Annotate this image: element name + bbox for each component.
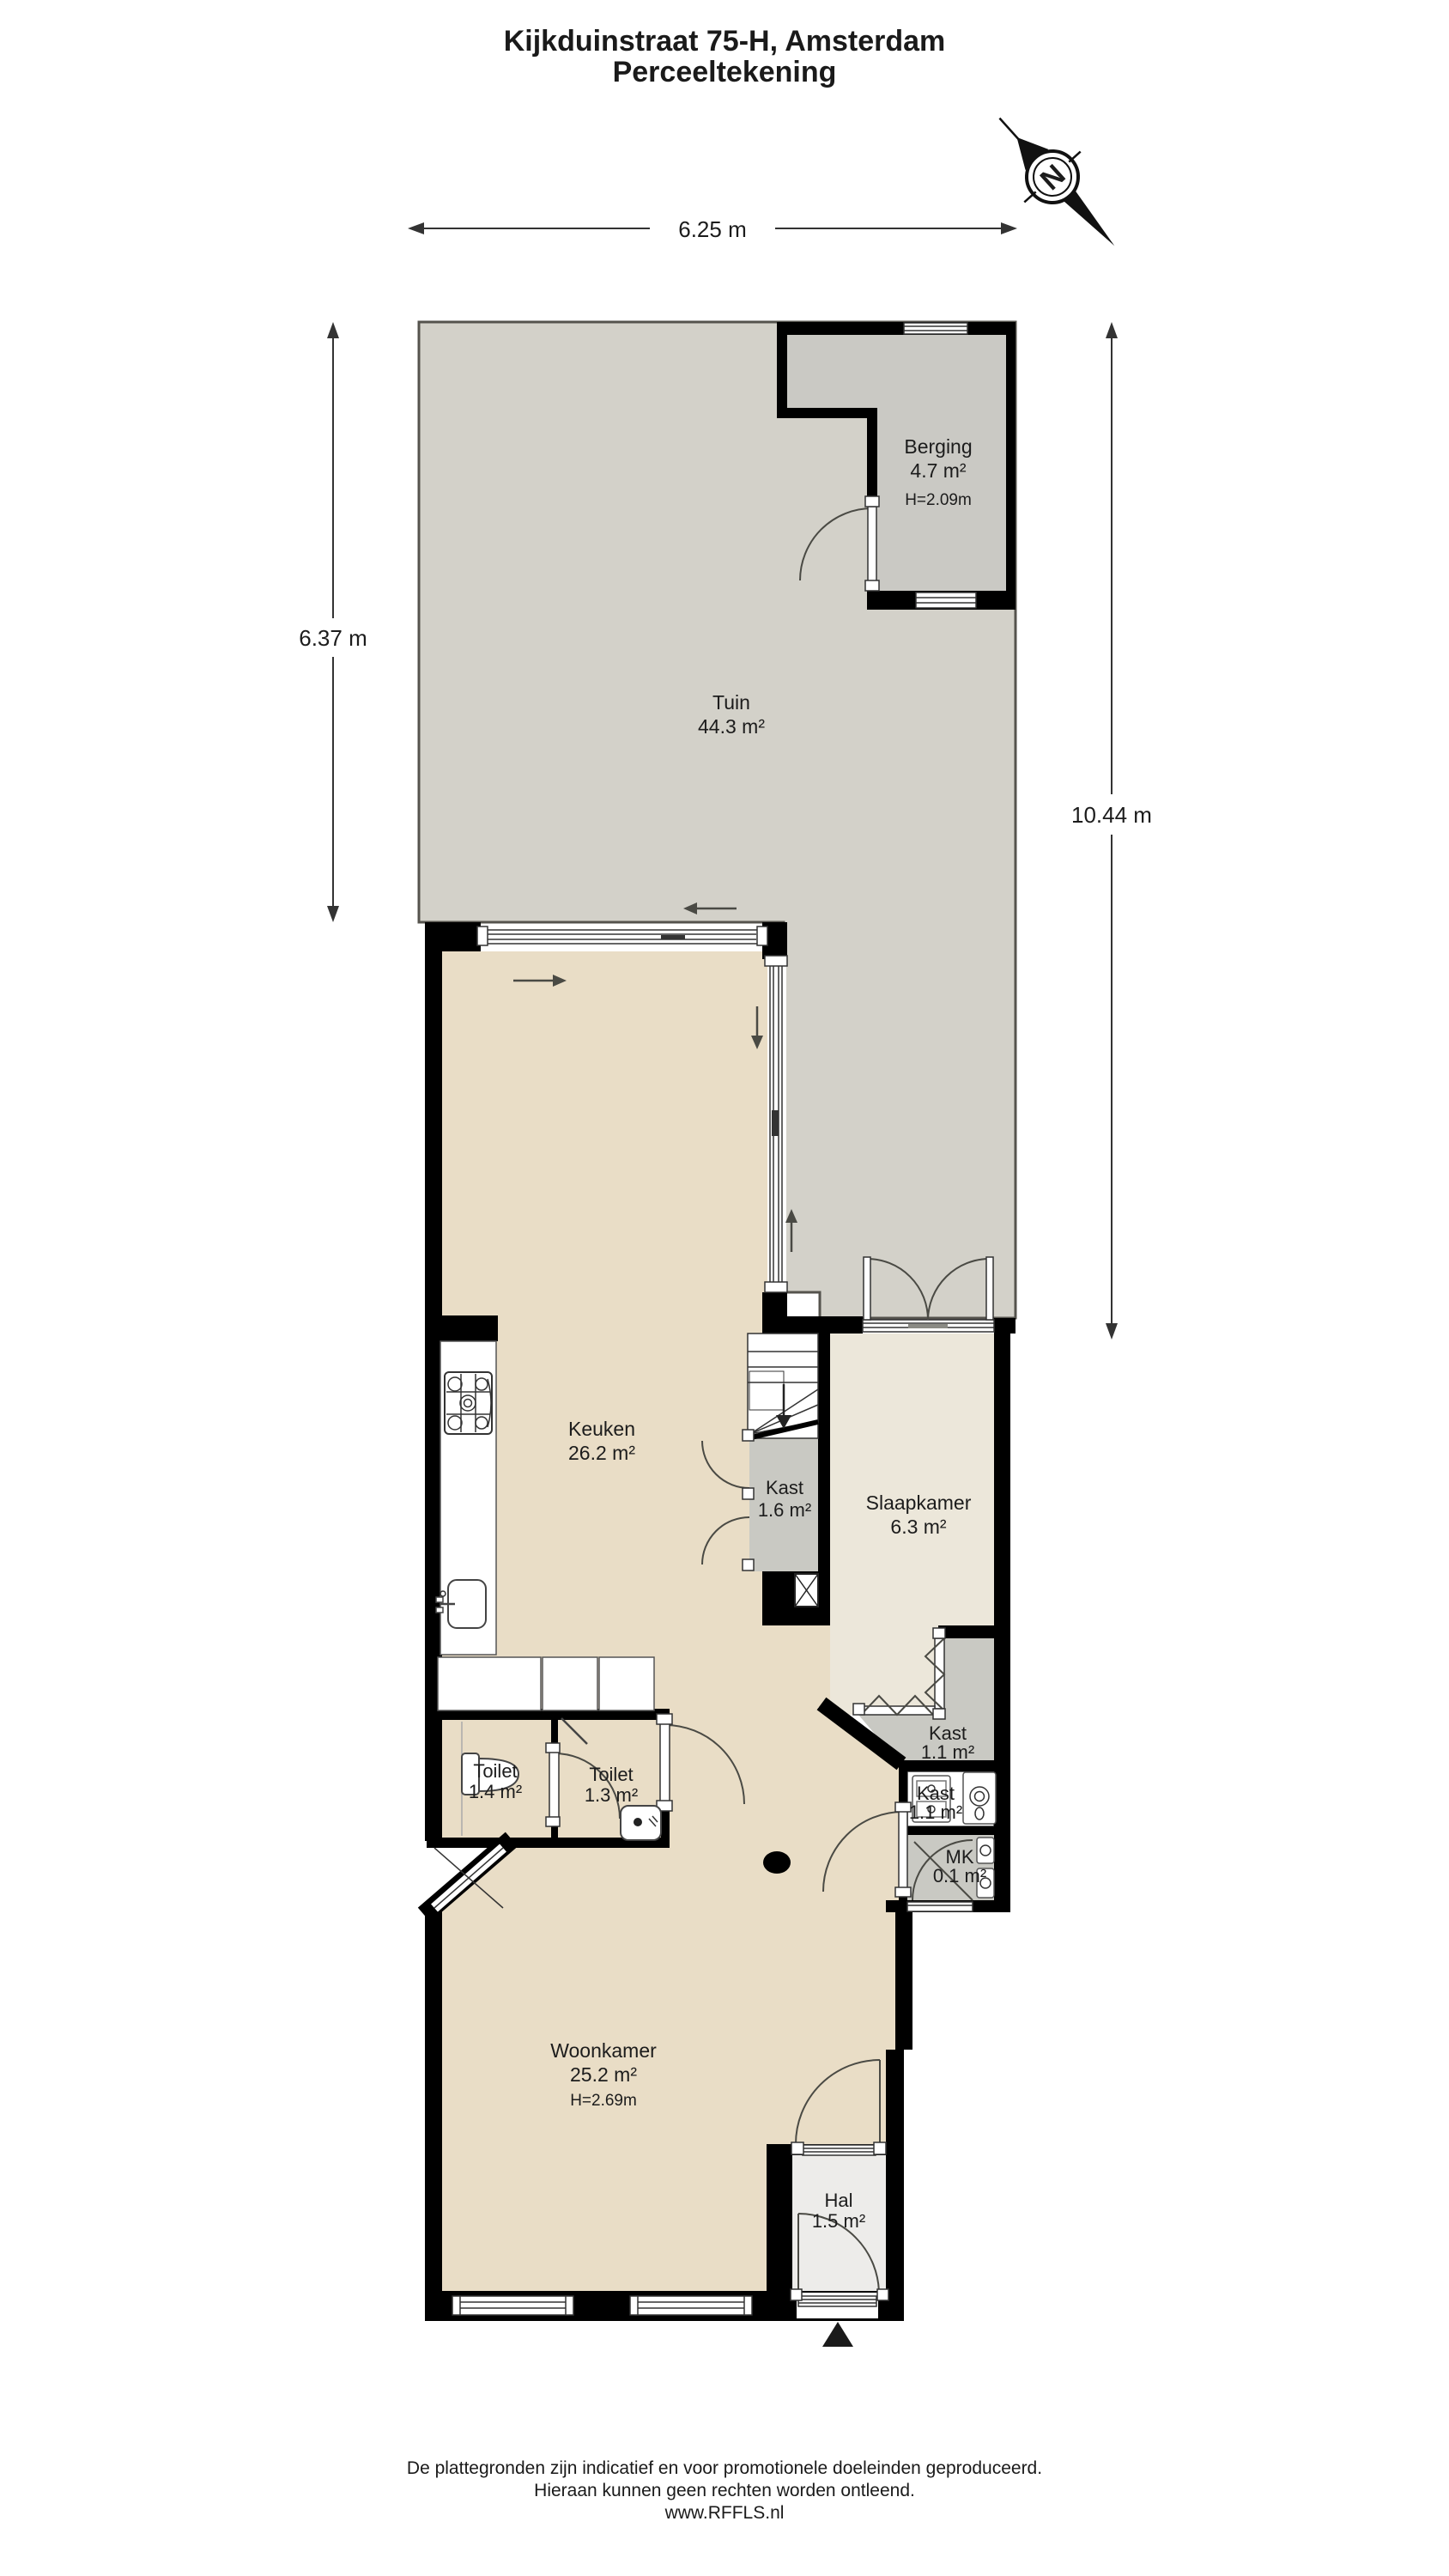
floorplan-page: Kijkduinstraat 75-H, Amsterdam Perceelte…	[0, 0, 1449, 2576]
kast-slk-area: 1.1 m²	[921, 1741, 974, 1763]
toilet-l-label: Toilet	[473, 1760, 517, 1782]
woonkamer-label: Woonkamer	[550, 2039, 657, 2062]
berging-height: H=2.09m	[905, 491, 972, 509]
footer-line2: Hieraan kunnen geen rechten worden ontle…	[0, 2480, 1449, 2502]
slaapkamer-area: 6.3 m²	[890, 1516, 947, 1538]
footer-disclaimer: De plattegronden zijn indicatief en voor…	[0, 2458, 1449, 2524]
footer-line1: De plattegronden zijn indicatief en voor…	[0, 2458, 1449, 2480]
toilet-r-label: Toilet	[589, 1764, 633, 1785]
page-title: Kijkduinstraat 75-H, Amsterdam Perceelte…	[0, 26, 1449, 88]
boiler-icon	[963, 1772, 996, 1824]
toilet-l-area: 1.4 m²	[469, 1781, 522, 1802]
woonkamer-area: 25.2 m²	[570, 2063, 637, 2086]
kast-trap-label: Kast	[766, 1477, 803, 1498]
dim-left-label: 6.37 m	[299, 625, 367, 651]
floorplan-drawing: 6.25 m 6.37 m 10.44 m N	[0, 0, 1449, 2576]
wc-icon	[621, 1806, 661, 1840]
column-dot	[763, 1851, 791, 1874]
hal-label: Hal	[824, 2190, 852, 2211]
dimension-left: 6.37 m	[292, 322, 374, 922]
slaapkamer-label: Slaapkamer	[866, 1492, 972, 1514]
berging-window-bottom	[916, 592, 976, 608]
kast-trap-area: 1.6 m²	[758, 1499, 811, 1521]
woonkamer-height: H=2.69m	[570, 2092, 637, 2110]
mk-area: 0.1 m²	[933, 1865, 986, 1886]
dimension-right: 10.44 m	[1064, 322, 1159, 1340]
entrance-arrow-icon	[822, 2322, 853, 2347]
tuin-area: 44.3 m²	[698, 715, 765, 738]
title-address: Kijkduinstraat 75-H, Amsterdam	[0, 26, 1449, 57]
title-subtitle: Perceeltekening	[0, 57, 1449, 88]
footer-url: www.RFFLS.nl	[0, 2502, 1449, 2524]
dimension-top: 6.25 m	[408, 216, 1017, 242]
berging-window-top	[904, 323, 967, 334]
keuken-label: Keuken	[568, 1418, 635, 1440]
toilet-r-area: 1.3 m²	[585, 1784, 638, 1806]
hal-area: 1.5 m²	[812, 2210, 865, 2232]
north-compass-icon: N	[972, 93, 1143, 271]
berging-label: Berging	[904, 435, 972, 458]
dim-top-label: 6.25 m	[678, 216, 747, 242]
dim-right-label: 10.44 m	[1071, 802, 1152, 828]
kast-was-area: 1.1 m²	[909, 1801, 962, 1823]
tuin-label: Tuin	[712, 691, 750, 714]
shaft-box	[795, 1574, 818, 1607]
hob-icon	[445, 1372, 492, 1434]
berging-area: 4.7 m²	[910, 459, 967, 482]
keuken-area: 26.2 m²	[568, 1442, 635, 1464]
stairs	[748, 1334, 818, 1438]
